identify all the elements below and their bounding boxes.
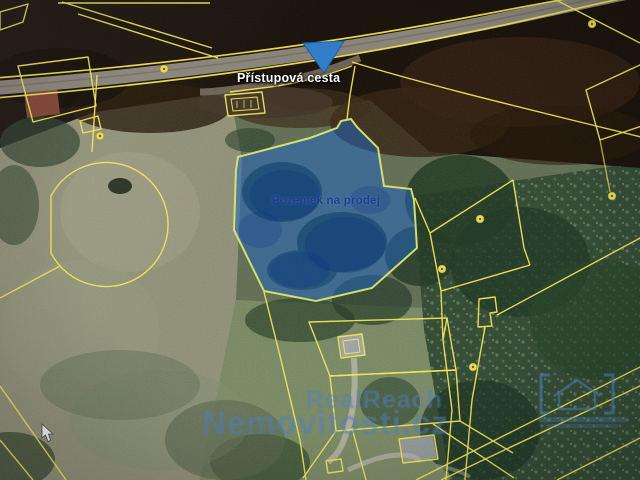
- access-road-label: Přístupová cesta: [237, 71, 340, 85]
- watermark-brand-line2: Nemovitosti.cz: [202, 404, 449, 442]
- landuse-symbol-icon: [469, 363, 477, 371]
- landuse-symbol-icon: [608, 192, 616, 200]
- parcel-for-sale-label: Pozemek na prodej: [264, 195, 388, 207]
- landuse-symbol-icon: [160, 65, 168, 73]
- landuse-symbol-icon: [476, 215, 484, 223]
- landuse-symbol-icon: [588, 20, 596, 28]
- landuse-symbol-icon: [438, 265, 446, 273]
- aerial-map[interactable]: Přístupová cesta Pozemek na prodej RealR…: [0, 0, 640, 480]
- brand-logo-brackets-icon: [538, 372, 640, 435]
- landuse-symbol-icon: [96, 132, 104, 140]
